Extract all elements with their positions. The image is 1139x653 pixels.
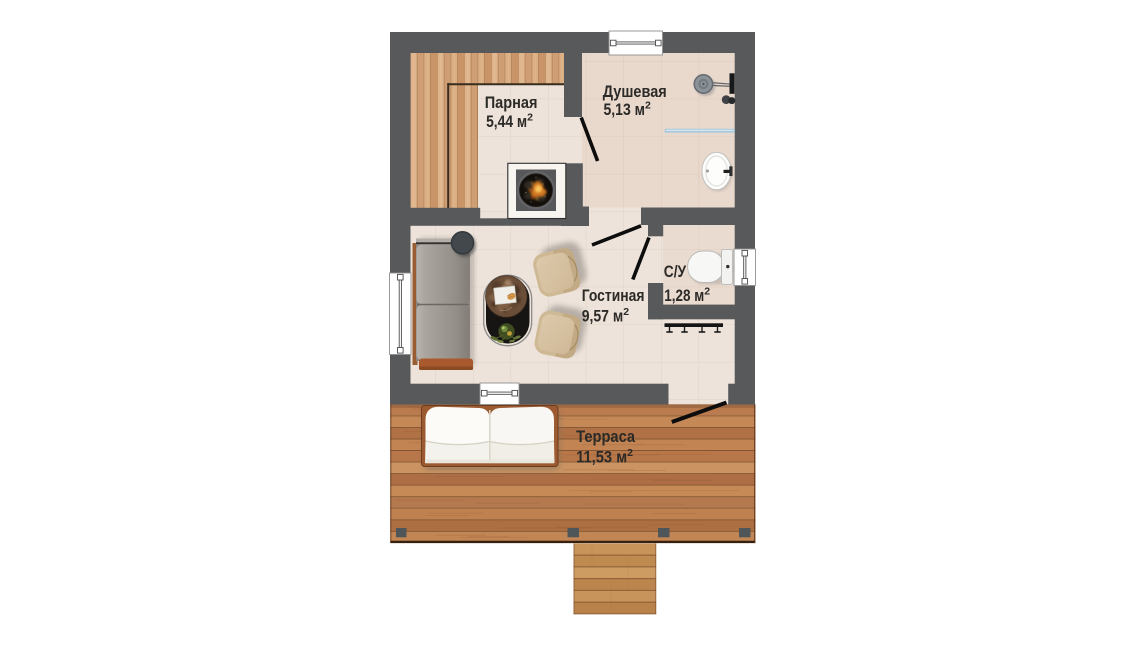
- svg-text:Парная: Парная: [485, 93, 538, 112]
- svg-text:1,28 м2: 1,28 м2: [664, 285, 710, 305]
- svg-text:Душевая: Душевая: [603, 82, 667, 101]
- svg-text:11,53 м2: 11,53 м2: [576, 447, 633, 467]
- svg-text:Гостиная: Гостиная: [582, 286, 645, 305]
- svg-text:9,57 м2: 9,57 м2: [582, 306, 630, 326]
- svg-text:С/У: С/У: [664, 262, 687, 281]
- svg-text:Терраса: Терраса: [576, 427, 635, 446]
- svg-text:5,44 м2: 5,44 м2: [486, 111, 533, 131]
- svg-text:5,13 м2: 5,13 м2: [604, 99, 652, 119]
